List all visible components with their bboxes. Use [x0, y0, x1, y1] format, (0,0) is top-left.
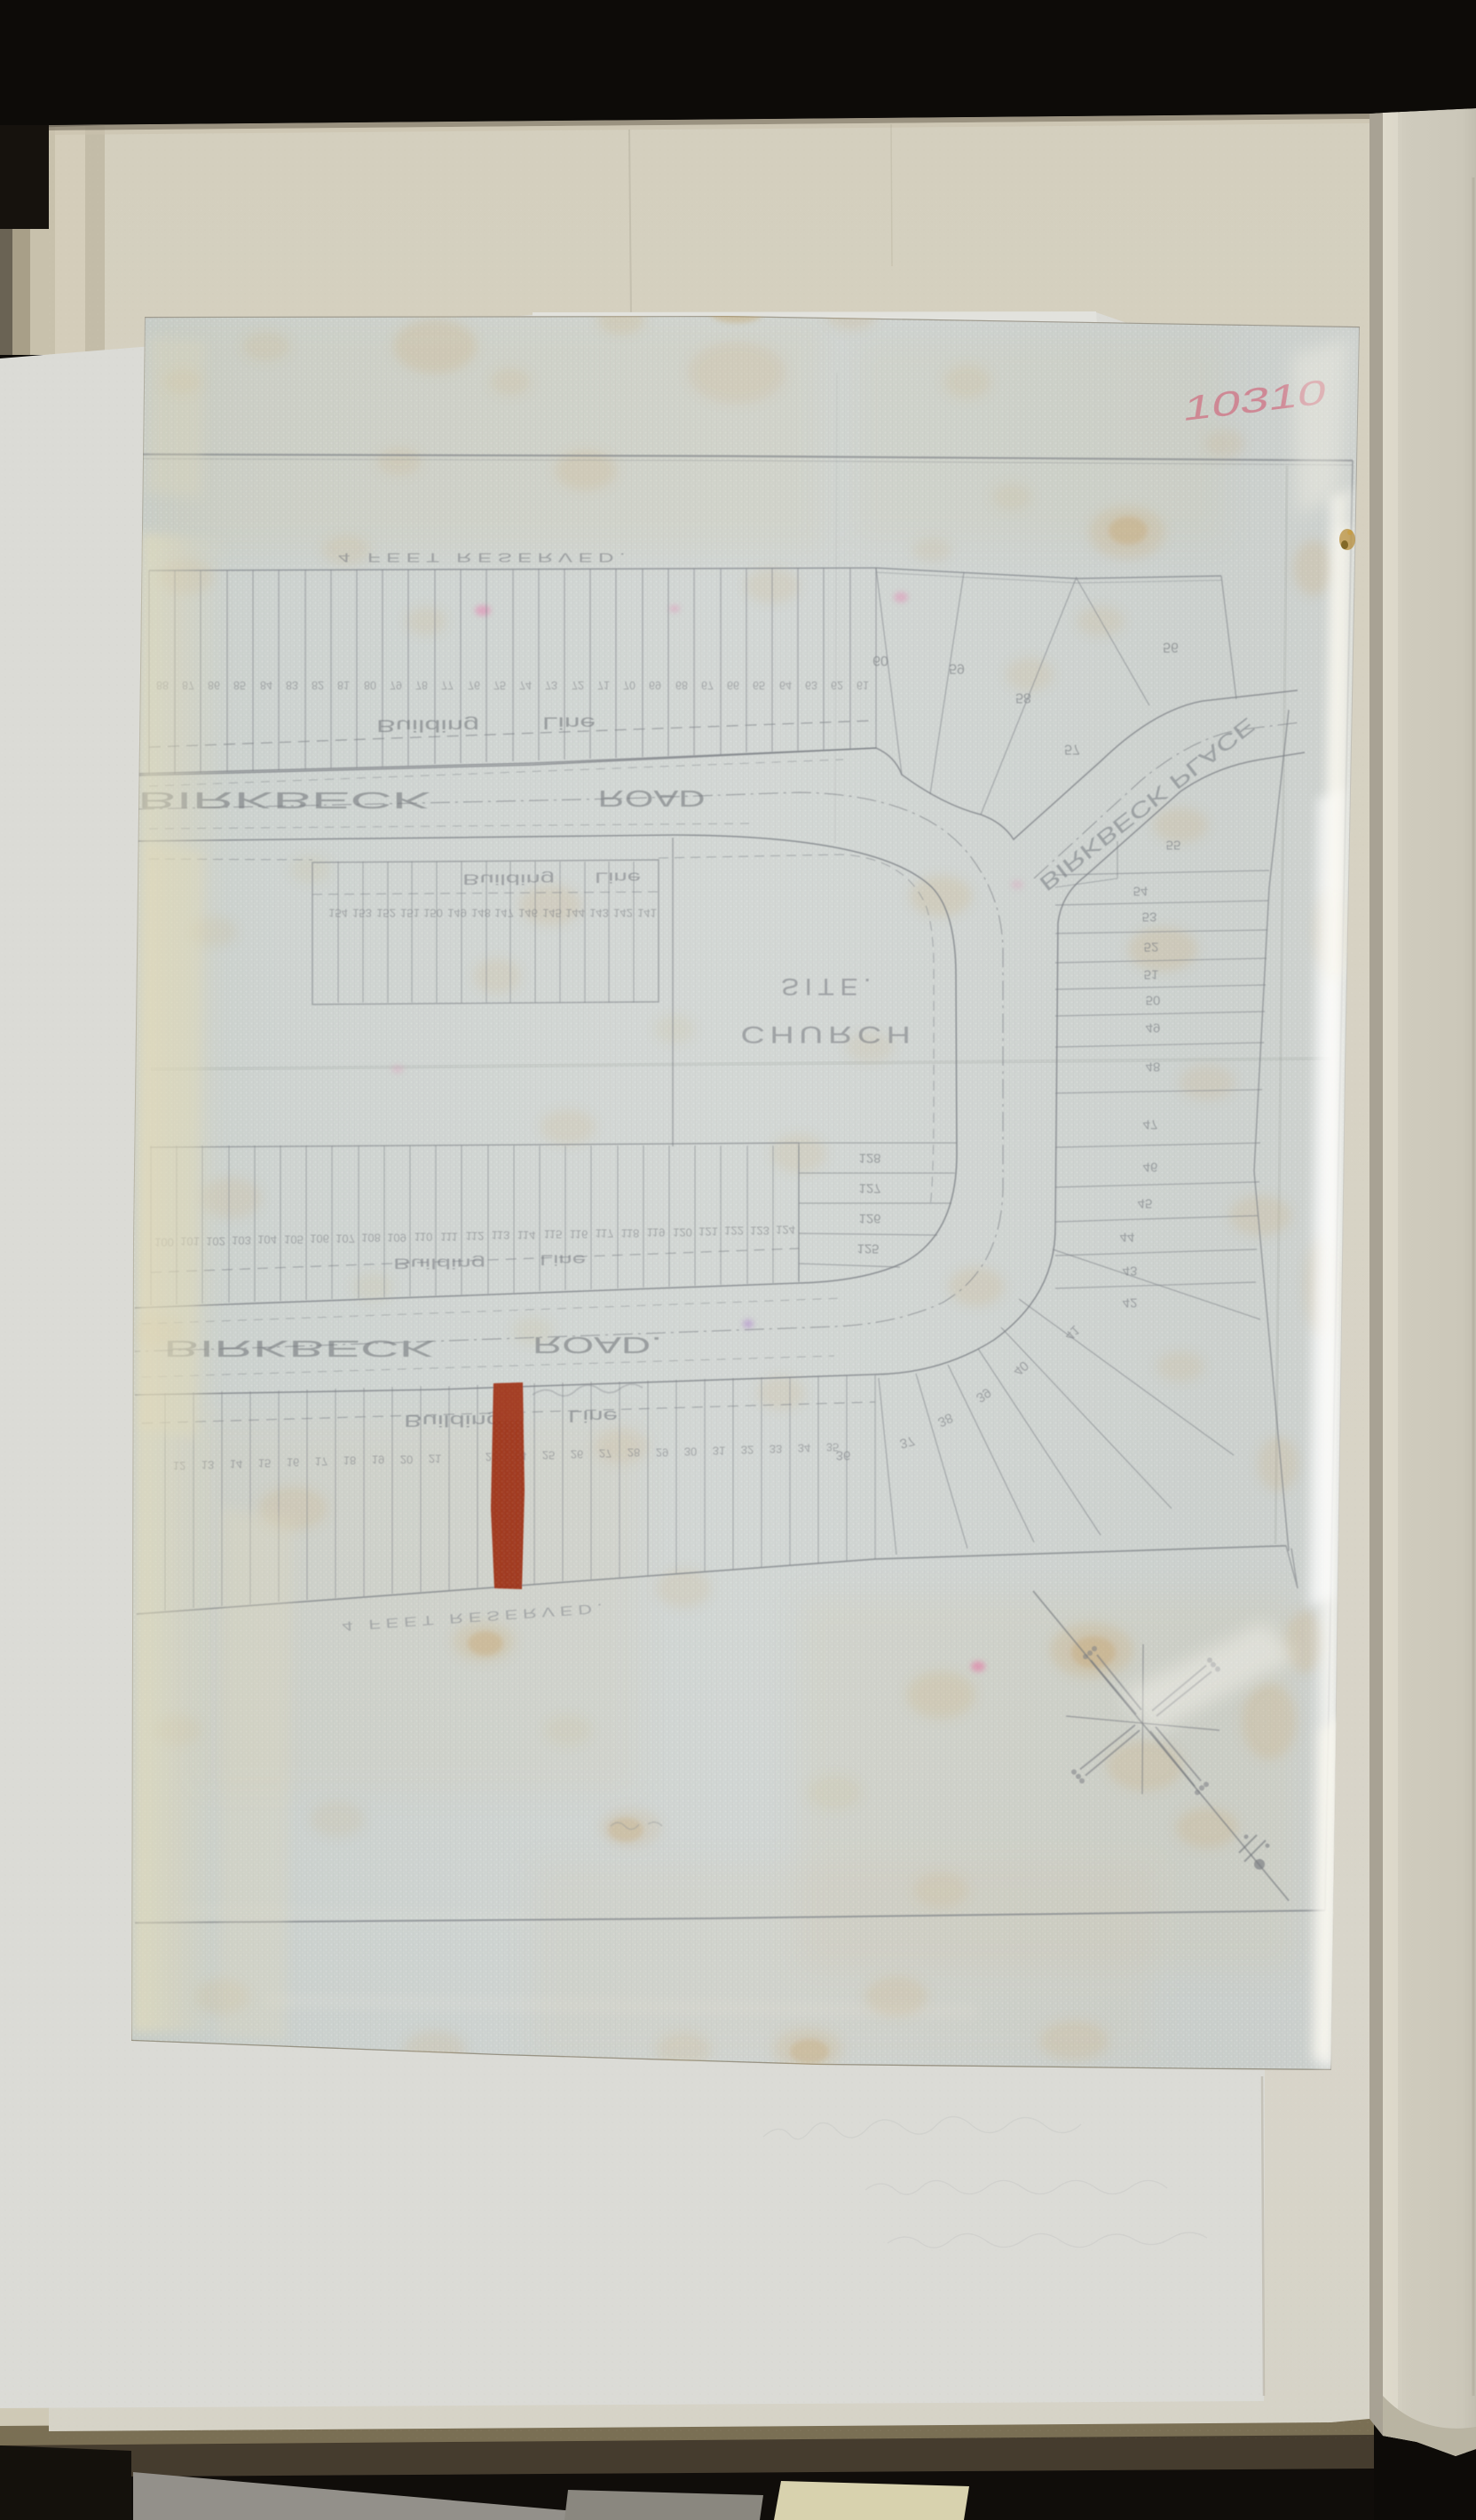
- svg-text:152: 152: [376, 907, 396, 920]
- svg-text:SITE.: SITE.: [781, 973, 877, 1000]
- svg-text:29: 29: [656, 1446, 668, 1460]
- svg-text:15: 15: [258, 1457, 271, 1470]
- svg-text:47: 47: [1143, 1117, 1158, 1132]
- svg-text:122: 122: [724, 1225, 744, 1238]
- svg-text:64: 64: [779, 679, 792, 691]
- svg-text:14: 14: [230, 1458, 242, 1471]
- svg-text:70: 70: [623, 679, 635, 691]
- svg-text:121: 121: [699, 1225, 718, 1239]
- svg-text:27: 27: [599, 1447, 612, 1461]
- svg-text:21: 21: [429, 1453, 441, 1466]
- svg-text:154: 154: [328, 907, 348, 920]
- svg-text:126: 126: [858, 1211, 880, 1226]
- svg-text:19: 19: [372, 1453, 384, 1467]
- svg-text:80: 80: [364, 679, 376, 691]
- svg-text:CHURCH: CHURCH: [741, 1021, 916, 1048]
- svg-text:146: 146: [518, 907, 538, 920]
- svg-text:53: 53: [1142, 910, 1157, 925]
- svg-text:104: 104: [257, 1233, 277, 1247]
- svg-text:112: 112: [466, 1230, 485, 1243]
- svg-text:59: 59: [949, 661, 965, 676]
- svg-text:141: 141: [637, 907, 657, 920]
- svg-text:67: 67: [701, 679, 714, 691]
- svg-text:51: 51: [1144, 967, 1159, 982]
- svg-text:73: 73: [545, 679, 557, 691]
- svg-text:32: 32: [741, 1444, 754, 1457]
- svg-text:62: 62: [831, 679, 843, 691]
- svg-text:44: 44: [1120, 1230, 1135, 1245]
- svg-text:ROAD: ROAD: [598, 785, 706, 812]
- svg-text:17: 17: [315, 1455, 328, 1469]
- svg-text:144: 144: [565, 907, 585, 920]
- svg-text:111: 111: [440, 1231, 458, 1244]
- svg-text:Line: Line: [595, 870, 641, 886]
- svg-text:106: 106: [310, 1232, 329, 1246]
- svg-text:20: 20: [400, 1453, 413, 1467]
- svg-text:76: 76: [468, 679, 480, 691]
- svg-text:147: 147: [494, 907, 514, 920]
- svg-text:43: 43: [1123, 1264, 1138, 1279]
- svg-text:65: 65: [753, 679, 765, 691]
- svg-text:36: 36: [836, 1448, 851, 1463]
- svg-text:61: 61: [856, 679, 869, 691]
- svg-text:84: 84: [260, 679, 272, 691]
- svg-text:75: 75: [493, 679, 506, 691]
- svg-text:25: 25: [542, 1449, 555, 1462]
- svg-text:34: 34: [798, 1442, 810, 1455]
- svg-text:33: 33: [770, 1443, 782, 1456]
- svg-text:110: 110: [414, 1231, 433, 1244]
- svg-text:Building: Building: [404, 1412, 501, 1429]
- svg-text:114: 114: [517, 1229, 536, 1242]
- svg-text:149: 149: [447, 907, 467, 920]
- svg-text:46: 46: [1143, 1160, 1158, 1175]
- svg-text:69: 69: [649, 679, 661, 691]
- svg-text:63: 63: [805, 679, 817, 691]
- svg-text:109: 109: [387, 1232, 406, 1245]
- svg-text:145: 145: [542, 907, 562, 920]
- svg-text:120: 120: [673, 1226, 692, 1240]
- svg-text:128: 128: [858, 1151, 880, 1166]
- svg-text:103: 103: [232, 1234, 251, 1248]
- svg-text:60: 60: [872, 653, 888, 668]
- svg-text:Line: Line: [542, 713, 596, 732]
- svg-text:142: 142: [613, 907, 633, 920]
- svg-text:Building: Building: [376, 716, 479, 735]
- svg-text:143: 143: [589, 907, 609, 920]
- svg-text:42: 42: [1123, 1295, 1138, 1311]
- svg-text:48: 48: [1146, 1059, 1161, 1075]
- svg-text:151: 151: [400, 907, 420, 920]
- svg-text:57: 57: [1064, 742, 1080, 757]
- svg-text:4 FEET RESERVED.: 4 FEET RESERVED.: [338, 550, 631, 565]
- svg-text:119: 119: [647, 1226, 666, 1240]
- svg-text:79: 79: [390, 679, 402, 691]
- svg-text:16: 16: [287, 1456, 299, 1469]
- svg-text:85: 85: [233, 679, 246, 691]
- svg-text:Building: Building: [393, 1256, 485, 1272]
- svg-text:52: 52: [1144, 940, 1159, 955]
- svg-text:116: 116: [570, 1228, 588, 1241]
- svg-text:54: 54: [1133, 884, 1148, 899]
- svg-text:31: 31: [713, 1445, 725, 1458]
- svg-text:105: 105: [284, 1233, 304, 1247]
- svg-text:45: 45: [1138, 1196, 1153, 1211]
- svg-text:113: 113: [492, 1229, 510, 1242]
- svg-text:74: 74: [519, 679, 532, 691]
- svg-text:108: 108: [361, 1232, 381, 1245]
- svg-text:125: 125: [856, 1241, 879, 1256]
- svg-text:117: 117: [596, 1227, 614, 1240]
- svg-text:148: 148: [471, 907, 491, 920]
- svg-text:56: 56: [1163, 640, 1179, 655]
- svg-text:78: 78: [415, 679, 428, 691]
- svg-text:Building: Building: [462, 871, 555, 888]
- svg-text:ROAD.: ROAD.: [533, 1332, 662, 1358]
- svg-text:Line: Line: [540, 1252, 586, 1269]
- svg-text:30: 30: [684, 1445, 697, 1459]
- svg-text:71: 71: [597, 679, 610, 691]
- svg-text:118: 118: [621, 1227, 640, 1240]
- svg-text:55: 55: [1166, 838, 1181, 853]
- svg-text:83: 83: [286, 679, 298, 691]
- svg-text:66: 66: [727, 679, 739, 691]
- svg-text:58: 58: [1015, 690, 1031, 705]
- svg-text:81: 81: [337, 679, 350, 691]
- svg-text:124: 124: [776, 1224, 795, 1237]
- svg-text:68: 68: [675, 679, 688, 691]
- svg-text:153: 153: [352, 907, 372, 920]
- svg-text:123: 123: [750, 1225, 770, 1238]
- svg-text:Line: Line: [568, 1407, 618, 1425]
- svg-text:82: 82: [312, 679, 324, 691]
- svg-text:49: 49: [1146, 1020, 1161, 1036]
- svg-text:115: 115: [544, 1228, 563, 1241]
- svg-text:77: 77: [441, 679, 454, 691]
- svg-text:28: 28: [627, 1446, 640, 1460]
- svg-text:150: 150: [423, 907, 443, 920]
- svg-text:72: 72: [572, 679, 584, 691]
- svg-text:18: 18: [343, 1454, 356, 1468]
- svg-text:26: 26: [571, 1448, 583, 1461]
- svg-text:127: 127: [858, 1181, 880, 1196]
- svg-text:50: 50: [1146, 993, 1161, 1008]
- svg-text:107: 107: [335, 1232, 355, 1246]
